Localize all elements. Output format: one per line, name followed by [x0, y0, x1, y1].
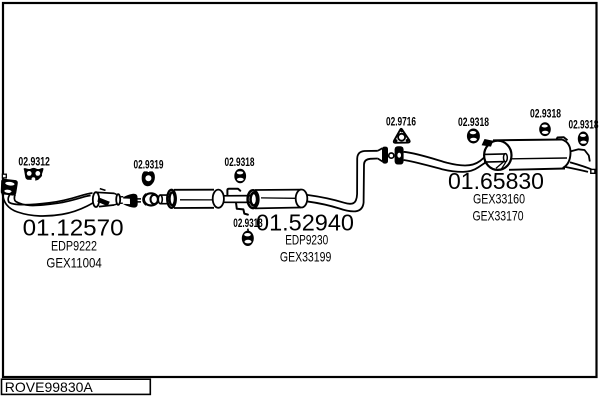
svg-text:ROVE99830A: ROVE99830A	[5, 379, 94, 395]
svg-text:02.9716: 02.9716	[386, 114, 416, 128]
svg-text:02.9318: 02.9318	[530, 106, 561, 120]
svg-text:02.9319: 02.9319	[134, 157, 164, 171]
svg-text:GEX33170: GEX33170	[473, 208, 524, 224]
svg-text:GEX11004: GEX11004	[46, 254, 102, 270]
svg-text:EDP9222: EDP9222	[51, 238, 97, 254]
svg-text:02.9318: 02.9318	[458, 115, 489, 129]
svg-text:GEX33160: GEX33160	[473, 191, 525, 207]
svg-text:02.9318: 02.9318	[569, 118, 599, 132]
svg-text:01.12570: 01.12570	[23, 215, 124, 241]
svg-text:02.9318: 02.9318	[225, 155, 255, 169]
svg-text:EDP9230: EDP9230	[285, 231, 328, 247]
svg-text:GEX33199: GEX33199	[280, 248, 332, 264]
svg-text:02.9312: 02.9312	[18, 155, 50, 169]
